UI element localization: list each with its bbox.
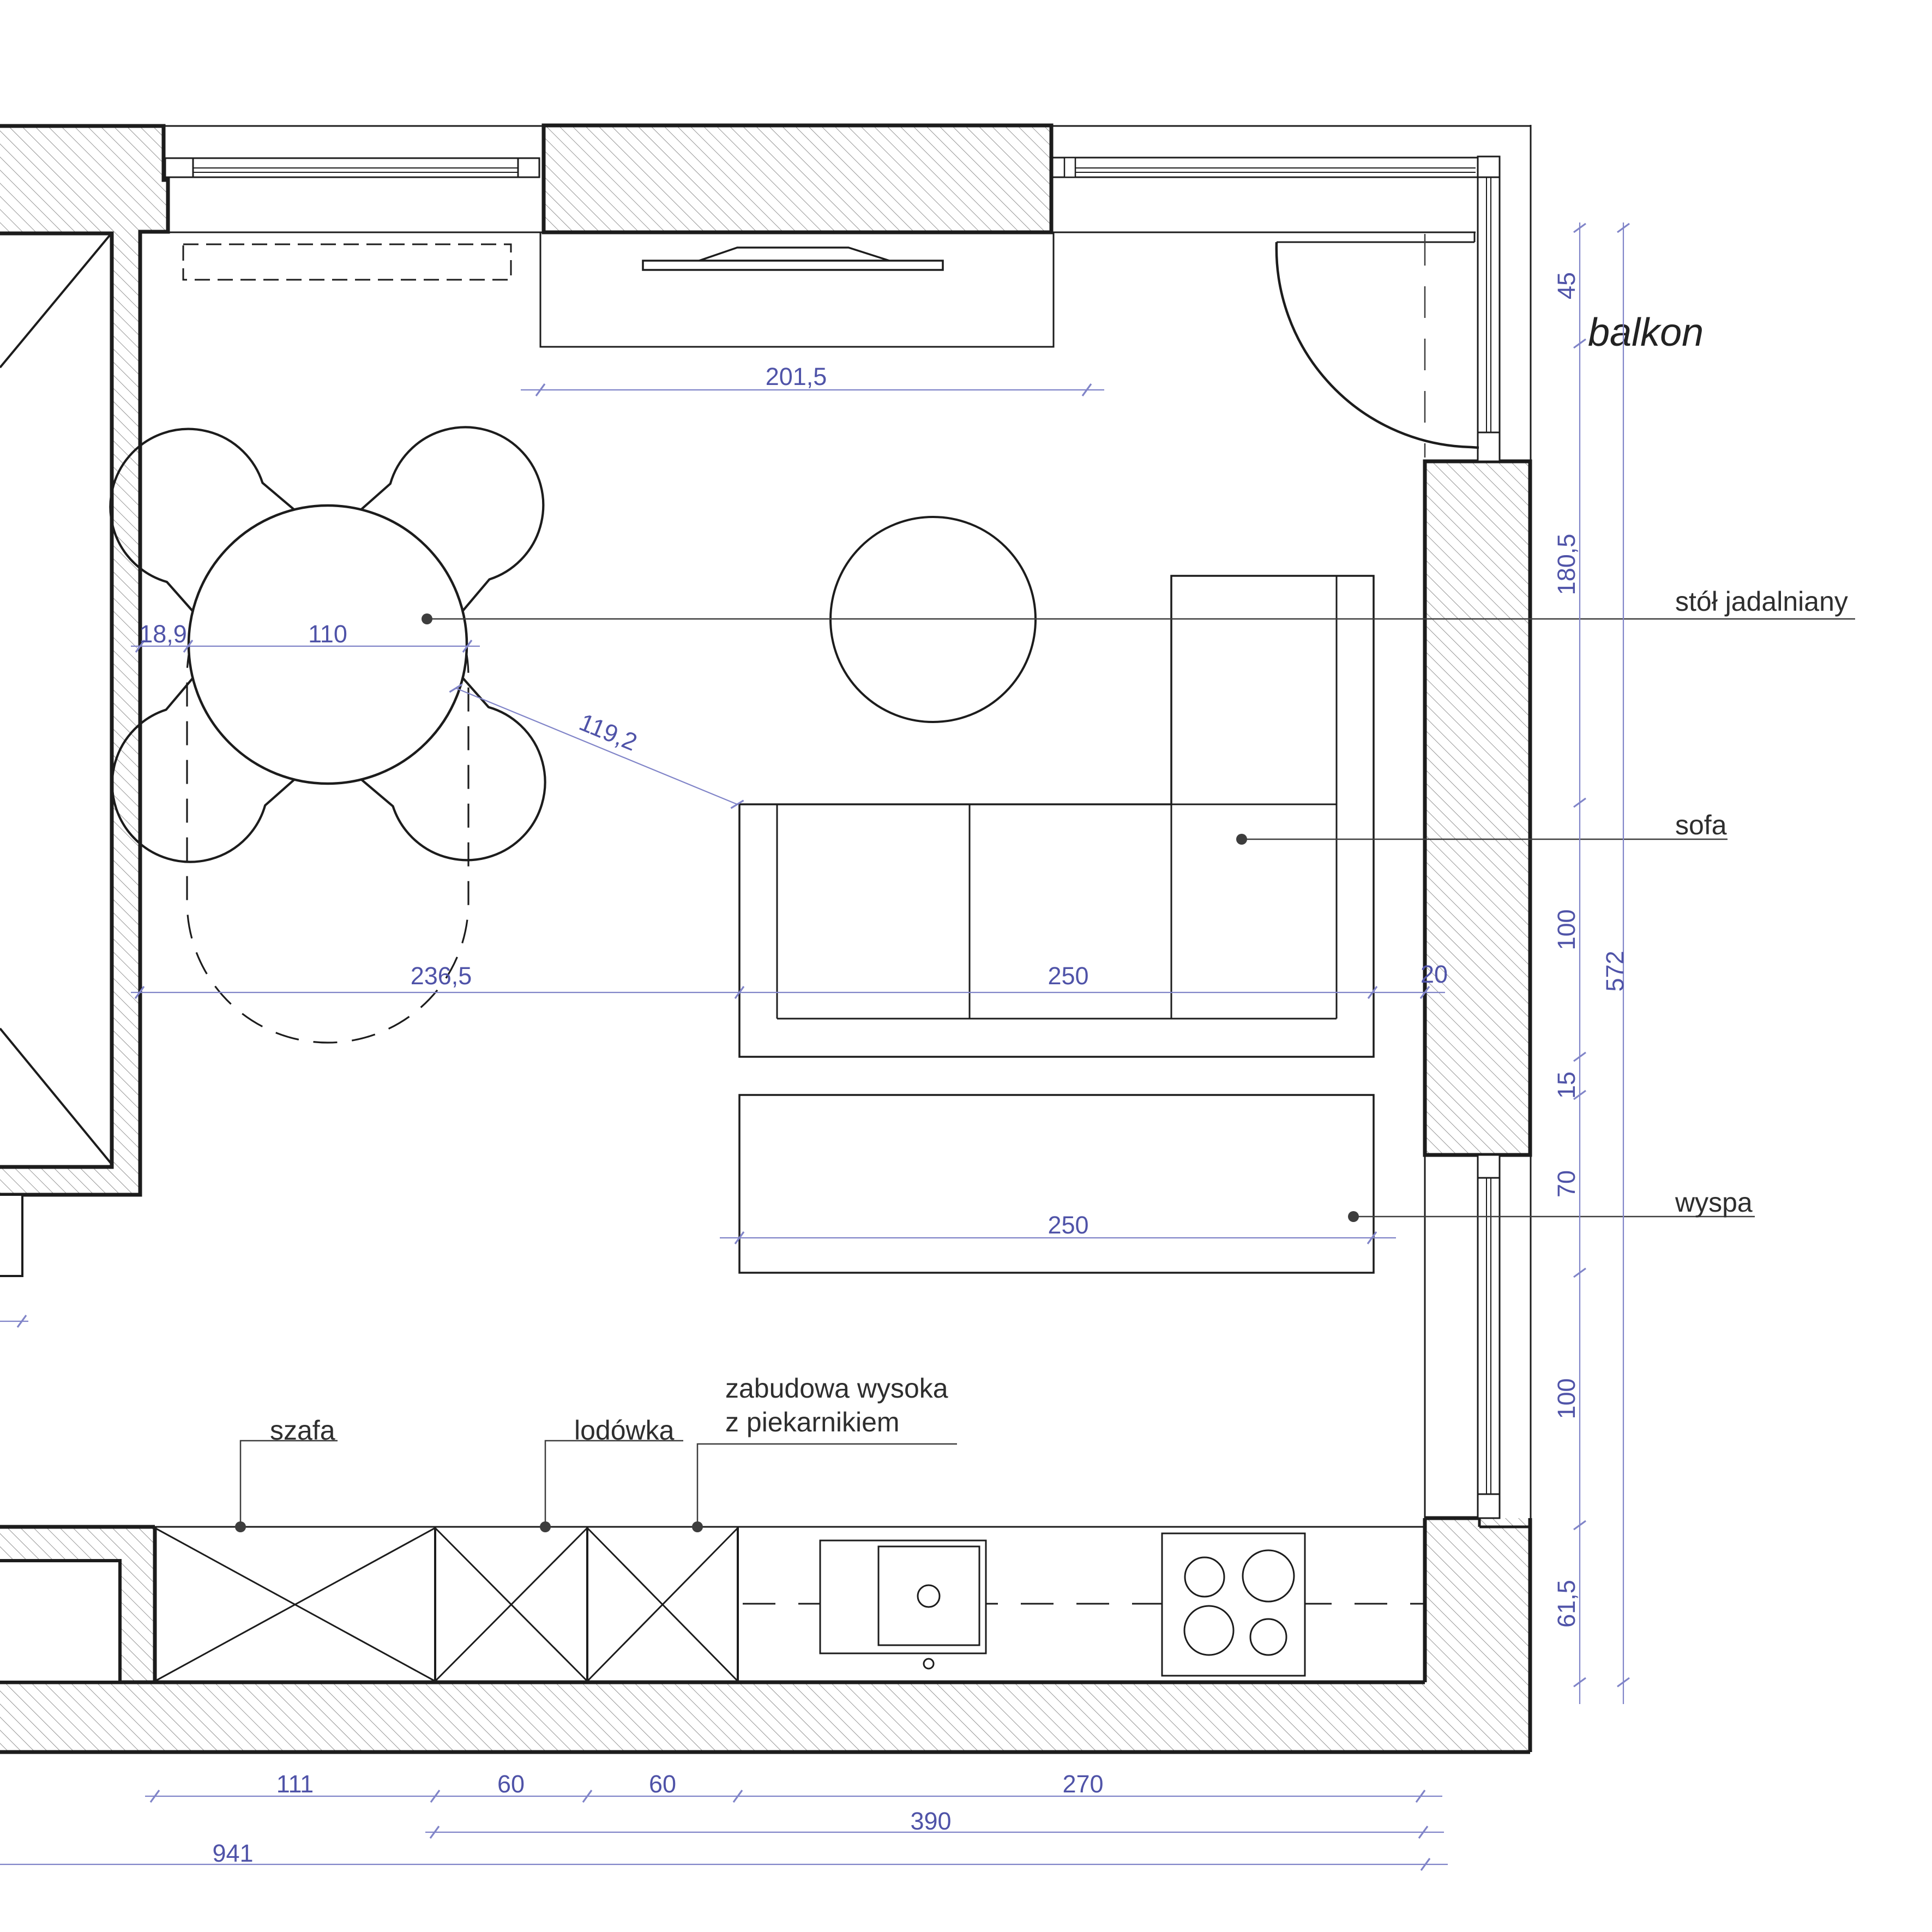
svg-text:572: 572 [1601,950,1629,991]
svg-text:zabudowa wysoka: zabudowa wysoka [725,1373,948,1404]
svg-text:z piekarnikiem: z piekarnikiem [725,1407,900,1437]
svg-text:wyspa: wyspa [1675,1187,1753,1218]
svg-text:lodówka: lodówka [574,1415,675,1446]
svg-text:szafa: szafa [270,1415,335,1446]
svg-text:100: 100 [1552,1378,1580,1419]
svg-text:70: 70 [1552,1170,1580,1197]
svg-text:15: 15 [1552,1072,1580,1099]
svg-text:941: 941 [212,1839,253,1867]
svg-text:balkon: balkon [1588,311,1704,354]
svg-text:100: 100 [1552,909,1580,950]
svg-text:110: 110 [308,620,347,648]
svg-text:270: 270 [1062,1770,1103,1798]
svg-text:60: 60 [497,1770,525,1798]
svg-text:61,5: 61,5 [1552,1580,1580,1628]
svg-text:sofa: sofa [1675,810,1727,840]
svg-text:60: 60 [649,1770,676,1798]
svg-text:stół jadalniany: stół jadalniany [1675,586,1848,617]
svg-text:201,5: 201,5 [766,363,827,390]
svg-text:20: 20 [1421,960,1448,988]
svg-text:111: 111 [276,1770,314,1798]
svg-text:45: 45 [1552,272,1580,299]
svg-text:250: 250 [1048,1211,1088,1239]
svg-text:180,5: 180,5 [1552,534,1580,595]
svg-text:236,5: 236,5 [411,962,472,990]
svg-text:18,9: 18,9 [139,620,187,648]
svg-text:250: 250 [1048,962,1088,990]
svg-text:390: 390 [910,1807,951,1835]
